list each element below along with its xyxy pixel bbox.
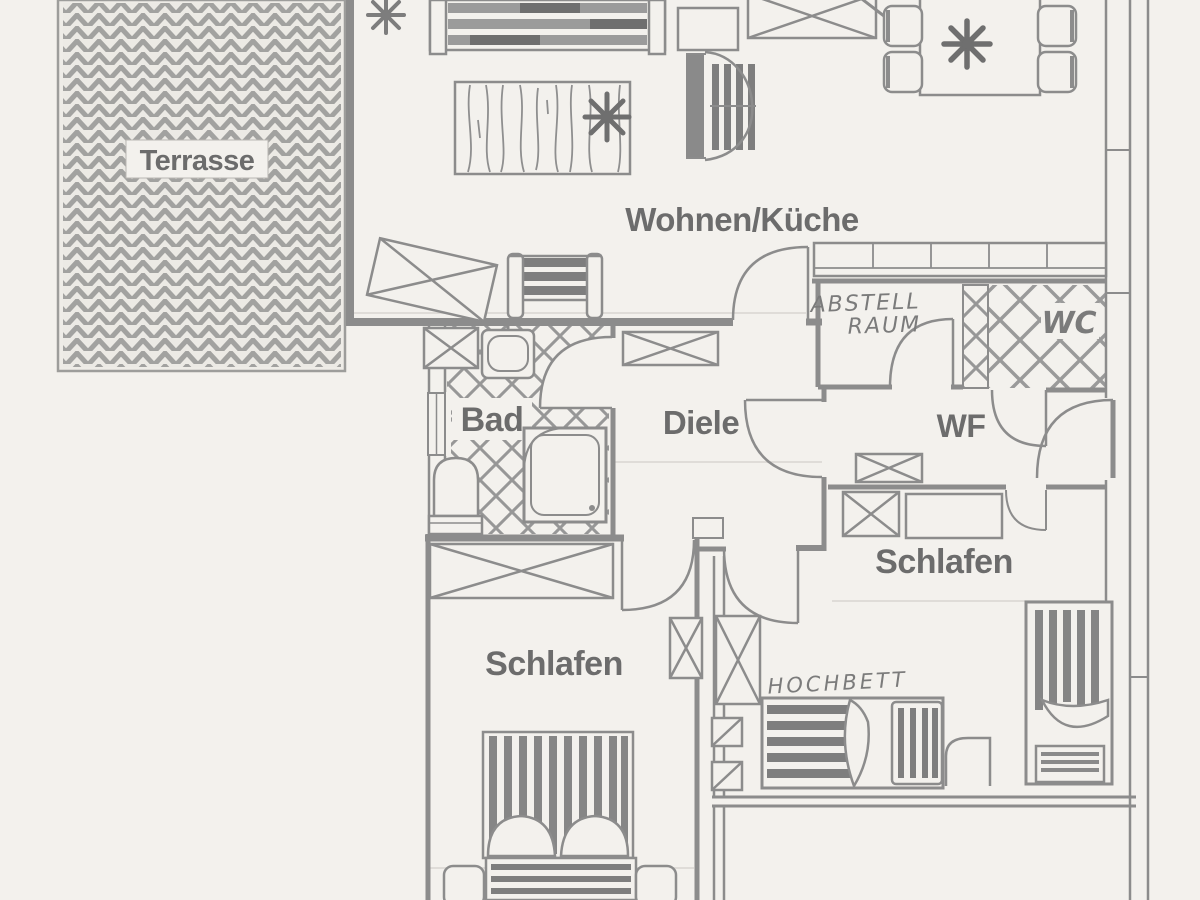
hall-wardrobe [623, 332, 718, 365]
bedroom-left-wardrobe [430, 544, 613, 598]
shoe-cabinet [856, 454, 922, 482]
hatched-wall-strip [963, 285, 988, 388]
schlafen-links-label: Schlafen [485, 645, 623, 683]
dining-chair [1038, 52, 1076, 92]
nightstand [444, 866, 484, 900]
wall-wardrobe-right-side [716, 616, 760, 704]
wardrobe-top [748, 0, 876, 38]
dining-table [920, 0, 1040, 95]
plant-icon [944, 21, 990, 67]
shower-drain [589, 505, 595, 511]
floorplan-page: Terrasse [0, 0, 1200, 900]
nightstand [636, 866, 676, 900]
sofa [430, 0, 665, 54]
desk [906, 494, 1002, 538]
floorplan-svg: Terrasse [0, 0, 1200, 900]
plant-icon [585, 94, 629, 140]
wohnen-kueche-label: Wohnen/Küche [625, 201, 859, 238]
schlafen-rechts-label: Schlafen [875, 543, 1013, 581]
terrasse-label: Terrasse [140, 145, 255, 177]
washing-machine [424, 328, 478, 368]
bad-window [423, 392, 451, 456]
abstellraum-label-line2: RAUM [847, 312, 921, 340]
dining-chair [884, 52, 922, 92]
wall-wardrobe-left-side [670, 618, 702, 678]
bathroom-sink [482, 323, 534, 378]
plant-icon [368, 0, 404, 33]
coffee-table [455, 82, 630, 174]
toilet [429, 458, 482, 534]
bedroom-right-wardrobe [843, 492, 899, 536]
kitchen-counter [814, 243, 1106, 276]
single-bed-right [1026, 602, 1112, 784]
small-shelf [712, 718, 742, 746]
nightstand [946, 738, 990, 786]
small-shelf [712, 762, 742, 790]
bad-label: Bad [461, 401, 524, 439]
shower [524, 428, 606, 522]
dining-chair [884, 6, 922, 46]
wf-label: WF [937, 408, 986, 444]
diele-label: Diele [663, 404, 740, 441]
terrasse-area: Terrasse [58, 0, 345, 371]
dining-chair [1038, 6, 1076, 46]
side-table [678, 8, 738, 50]
wc-label: WC [1041, 306, 1096, 341]
